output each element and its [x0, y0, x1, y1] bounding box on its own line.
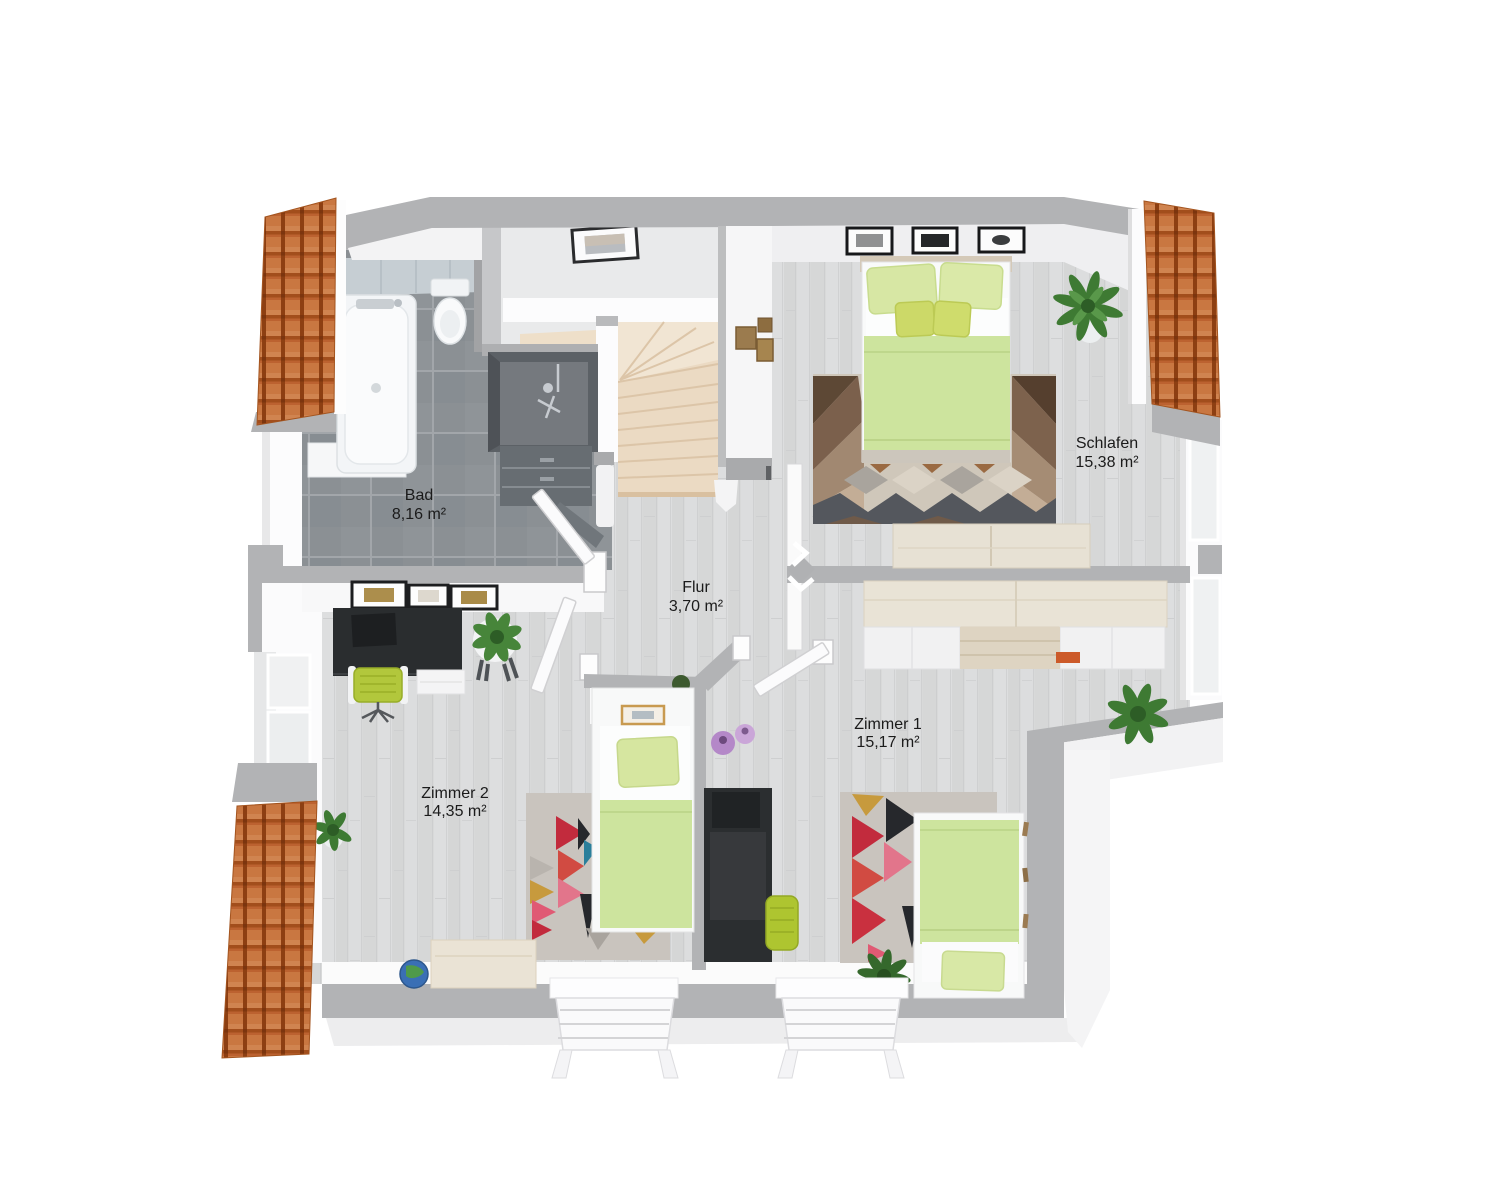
- svg-text:8,16 m²: 8,16 m²: [392, 506, 447, 523]
- svg-text:Zimmer 2: Zimmer 2: [421, 785, 489, 802]
- svg-text:Bad: Bad: [405, 487, 433, 504]
- svg-text:15,38 m²: 15,38 m²: [1075, 454, 1139, 471]
- svg-text:Flur: Flur: [682, 579, 710, 596]
- svg-text:14,35 m²: 14,35 m²: [423, 803, 487, 820]
- svg-text:3,70 m²: 3,70 m²: [669, 598, 724, 615]
- svg-text:15,17 m²: 15,17 m²: [856, 734, 920, 751]
- svg-text:Zimmer 1: Zimmer 1: [854, 716, 922, 733]
- svg-text:Schlafen: Schlafen: [1076, 435, 1138, 452]
